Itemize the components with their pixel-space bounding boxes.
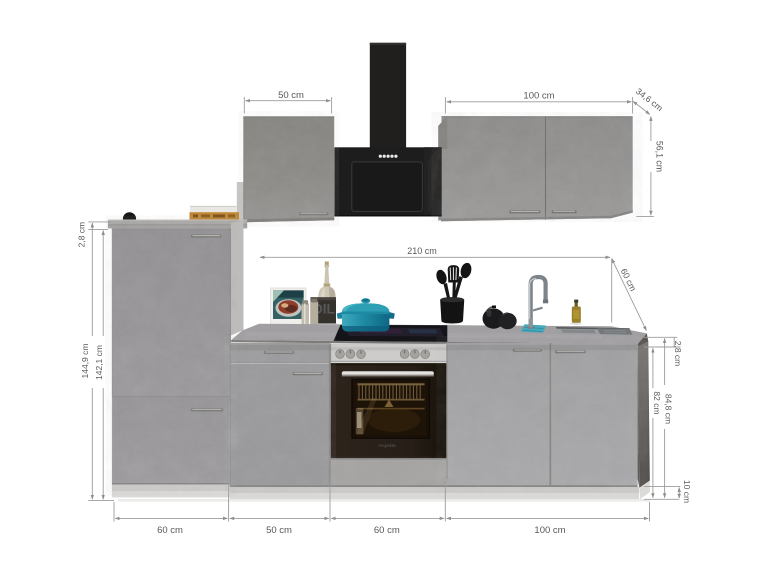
svg-text:respekta: respekta	[378, 443, 396, 448]
svg-text:210 cm: 210 cm	[407, 246, 437, 256]
svg-text:142,1 cm: 142,1 cm	[94, 345, 104, 380]
svg-text:84,8 cm: 84,8 cm	[664, 394, 674, 424]
svg-text:100 cm: 100 cm	[523, 91, 554, 102]
svg-text:60 cm: 60 cm	[157, 525, 183, 536]
svg-text:60 cm: 60 cm	[374, 525, 400, 536]
svg-text:50 cm: 50 cm	[266, 525, 292, 536]
svg-text:50 cm: 50 cm	[278, 90, 304, 101]
svg-text:10 cm: 10 cm	[682, 480, 692, 503]
svg-text:144,9 cm: 144,9 cm	[80, 344, 90, 379]
svg-text:2,8 cm: 2,8 cm	[673, 341, 683, 367]
svg-text:2,8 cm: 2,8 cm	[76, 222, 86, 248]
svg-text:100 cm: 100 cm	[534, 525, 565, 536]
svg-text:56,1 cm: 56,1 cm	[655, 141, 665, 172]
